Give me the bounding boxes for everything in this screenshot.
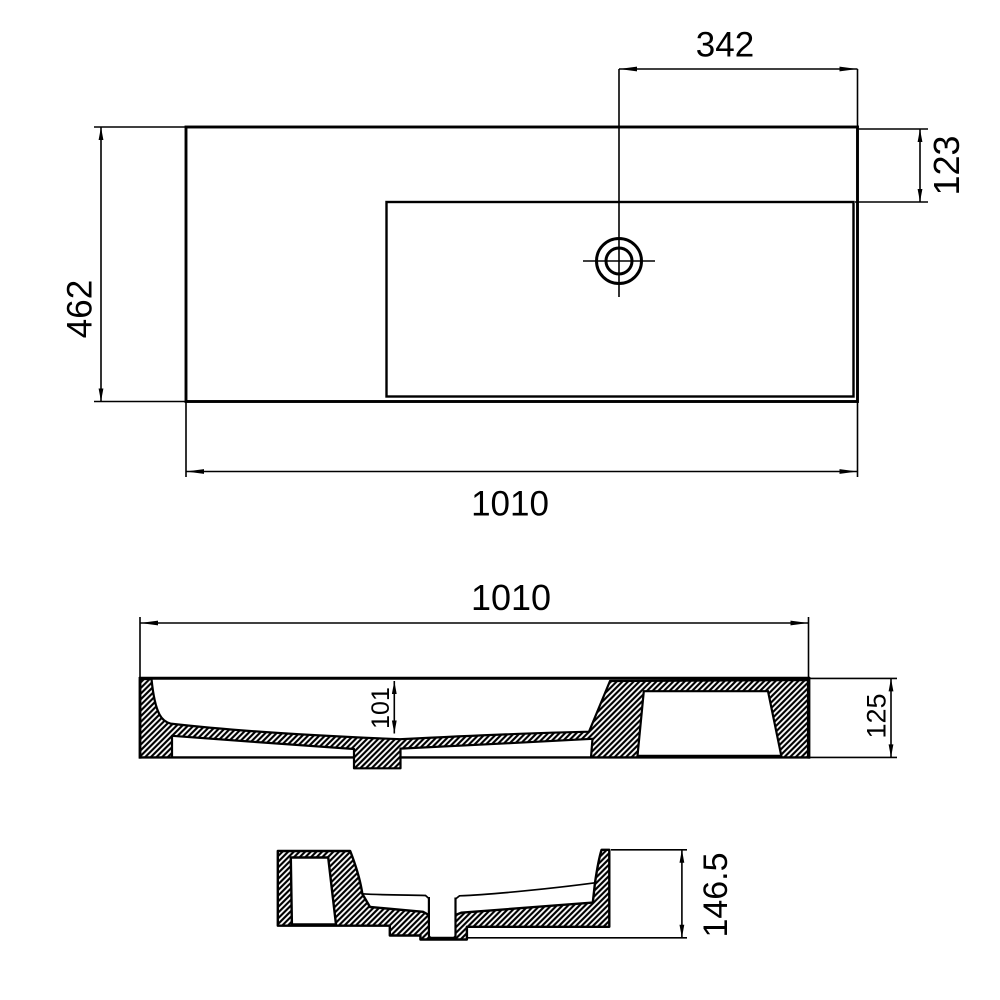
svg-text:1010: 1010 (471, 485, 549, 524)
svg-text:1010: 1010 (471, 577, 551, 618)
svg-text:146.5: 146.5 (697, 852, 735, 937)
svg-text:101: 101 (367, 687, 395, 729)
svg-text:123: 123 (926, 135, 967, 195)
svg-text:462: 462 (61, 280, 100, 338)
svg-text:125: 125 (862, 693, 892, 738)
svg-text:342: 342 (696, 26, 754, 65)
